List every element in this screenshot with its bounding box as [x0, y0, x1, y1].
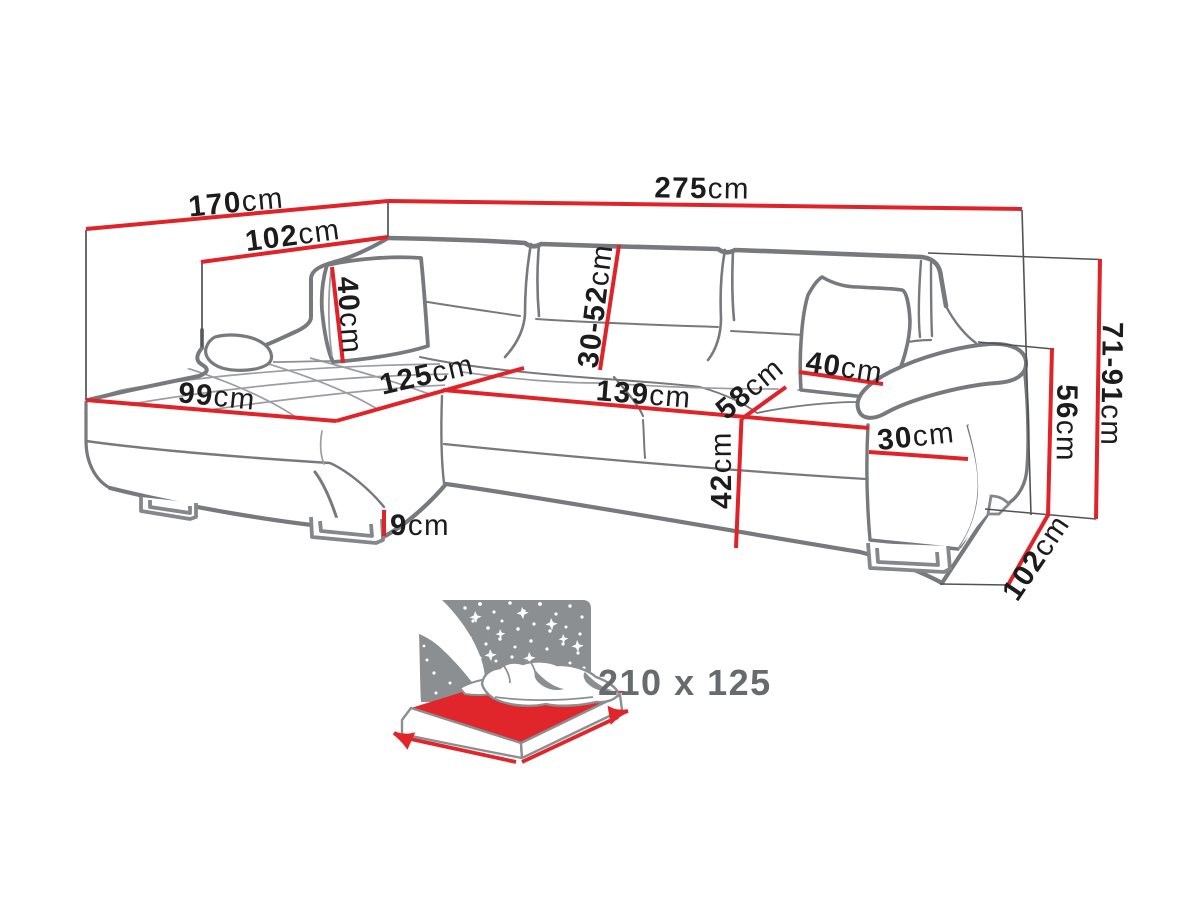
- svg-text:210 x 125: 210 x 125: [598, 662, 772, 703]
- svg-text:42cm: 42cm: [705, 431, 739, 509]
- svg-text:9cm: 9cm: [390, 509, 450, 542]
- svg-text:56cm: 56cm: [1050, 384, 1084, 462]
- svg-text:275cm: 275cm: [654, 171, 750, 205]
- svg-text:71-91cm: 71-91cm: [1094, 322, 1129, 447]
- svg-text:40cm: 40cm: [330, 275, 368, 355]
